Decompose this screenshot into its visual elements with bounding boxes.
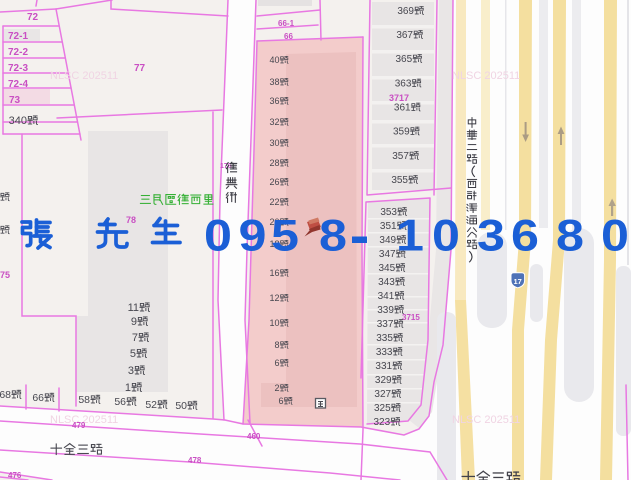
svg-text:361: 361 (394, 103, 411, 114)
svg-text:6: 6 (511, 211, 539, 261)
svg-text:68: 68 (0, 389, 11, 401)
svg-text:327: 327 (374, 389, 391, 400)
svg-text:17: 17 (514, 277, 522, 286)
svg-text:340: 340 (9, 115, 27, 127)
svg-text:359: 359 (393, 127, 410, 138)
svg-text:66: 66 (32, 392, 44, 404)
svg-text:16: 16 (269, 268, 279, 278)
svg-text:5: 5 (130, 348, 136, 360)
svg-text:72: 72 (27, 12, 39, 23)
svg-text:11: 11 (128, 302, 139, 314)
svg-text:323: 323 (374, 417, 391, 428)
svg-text:30: 30 (269, 138, 279, 148)
svg-text:38: 38 (269, 77, 279, 87)
svg-text:333: 333 (376, 347, 393, 358)
svg-text:337: 337 (377, 319, 394, 330)
svg-text:0: 0 (432, 211, 460, 261)
svg-text:363: 363 (395, 79, 412, 90)
svg-text:2: 2 (274, 383, 279, 393)
svg-text:343: 343 (378, 277, 395, 288)
svg-text:357: 357 (392, 151, 409, 162)
svg-text:77: 77 (134, 63, 146, 74)
svg-text:NLSC 202511: NLSC 202511 (50, 70, 118, 82)
svg-text:355: 355 (391, 175, 408, 186)
svg-text:56: 56 (114, 396, 126, 408)
svg-text:478: 478 (188, 456, 202, 465)
svg-text:12: 12 (269, 293, 279, 303)
svg-text:NLSC 202511: NLSC 202511 (452, 70, 520, 82)
svg-text:325: 325 (374, 403, 391, 414)
svg-text:36: 36 (269, 96, 279, 106)
svg-text:339: 339 (377, 305, 394, 316)
svg-text:6: 6 (278, 396, 283, 406)
svg-text:72-2: 72-2 (8, 47, 28, 58)
svg-text:349: 349 (379, 235, 396, 246)
svg-text:460: 460 (247, 432, 261, 441)
svg-text:8: 8 (319, 211, 347, 261)
svg-text:52: 52 (145, 399, 157, 411)
svg-text:66: 66 (284, 32, 293, 41)
svg-text:345: 345 (379, 263, 396, 274)
svg-text:7: 7 (132, 332, 138, 344)
svg-text:72-4: 72-4 (8, 79, 28, 90)
svg-text:73: 73 (9, 95, 21, 106)
svg-text:0: 0 (601, 211, 629, 261)
svg-text:32: 32 (269, 117, 279, 127)
svg-text:72-3: 72-3 (8, 63, 28, 74)
svg-text:3: 3 (128, 365, 134, 377)
svg-text:365: 365 (396, 54, 413, 65)
svg-text:341: 341 (378, 291, 395, 302)
svg-text:3717: 3717 (389, 93, 409, 103)
svg-text:58: 58 (78, 394, 90, 406)
svg-text:8: 8 (274, 340, 279, 350)
svg-text:331: 331 (375, 361, 392, 372)
svg-text:3715: 3715 (402, 313, 420, 322)
svg-text:353: 353 (380, 207, 397, 218)
svg-text:5: 5 (271, 211, 299, 261)
svg-text:369: 369 (397, 6, 414, 17)
svg-text:66-1: 66-1 (278, 19, 295, 28)
svg-text:6: 6 (274, 358, 279, 368)
svg-text:22: 22 (269, 197, 279, 207)
svg-text:72-1: 72-1 (8, 31, 28, 42)
svg-text:9: 9 (239, 211, 267, 261)
svg-text:1: 1 (396, 211, 424, 261)
svg-text:40: 40 (269, 55, 279, 65)
svg-text:3: 3 (477, 211, 505, 261)
svg-text:NLSC 202511: NLSC 202511 (452, 414, 520, 426)
svg-text:329: 329 (375, 375, 392, 386)
svg-text:351: 351 (380, 221, 397, 232)
svg-text:9: 9 (131, 316, 137, 328)
svg-text:0: 0 (204, 211, 232, 261)
svg-text:26: 26 (269, 177, 279, 187)
svg-text:479: 479 (72, 421, 86, 430)
svg-text:28: 28 (269, 158, 279, 168)
svg-text:50: 50 (175, 400, 187, 412)
svg-text:8: 8 (556, 211, 584, 261)
svg-text:78: 78 (126, 215, 136, 225)
svg-text:347: 347 (379, 249, 396, 260)
svg-text:10: 10 (269, 318, 279, 328)
svg-text:335: 335 (376, 333, 393, 344)
svg-text:1: 1 (125, 382, 131, 394)
svg-text:367: 367 (396, 30, 413, 41)
svg-text:476: 476 (8, 471, 22, 480)
svg-text:75: 75 (0, 270, 10, 280)
